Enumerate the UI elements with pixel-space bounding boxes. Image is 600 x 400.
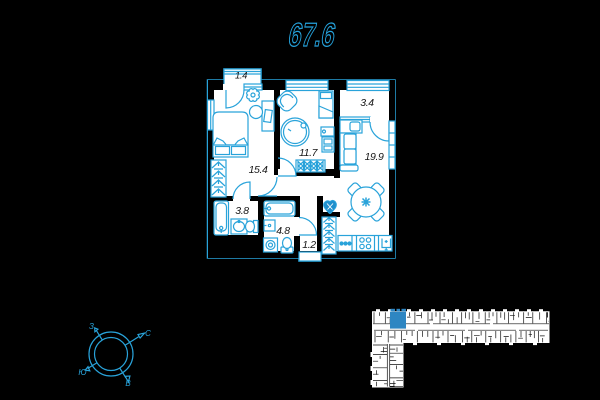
- svg-text:11.7: 11.7: [299, 147, 319, 159]
- svg-text:15.4: 15.4: [249, 164, 268, 176]
- svg-text:4.8: 4.8: [276, 225, 290, 237]
- svg-text:19.9: 19.9: [365, 151, 384, 163]
- svg-text:67.6: 67.6: [285, 17, 338, 54]
- svg-text:В: В: [125, 379, 131, 388]
- svg-text:3.8: 3.8: [235, 205, 249, 217]
- svg-text:1.2: 1.2: [302, 239, 316, 251]
- svg-text:Ю: Ю: [78, 368, 86, 377]
- svg-text:3.4: 3.4: [360, 97, 374, 109]
- svg-text:С: С: [145, 329, 151, 338]
- svg-text:З: З: [89, 322, 94, 331]
- svg-text:1.4: 1.4: [235, 71, 247, 82]
